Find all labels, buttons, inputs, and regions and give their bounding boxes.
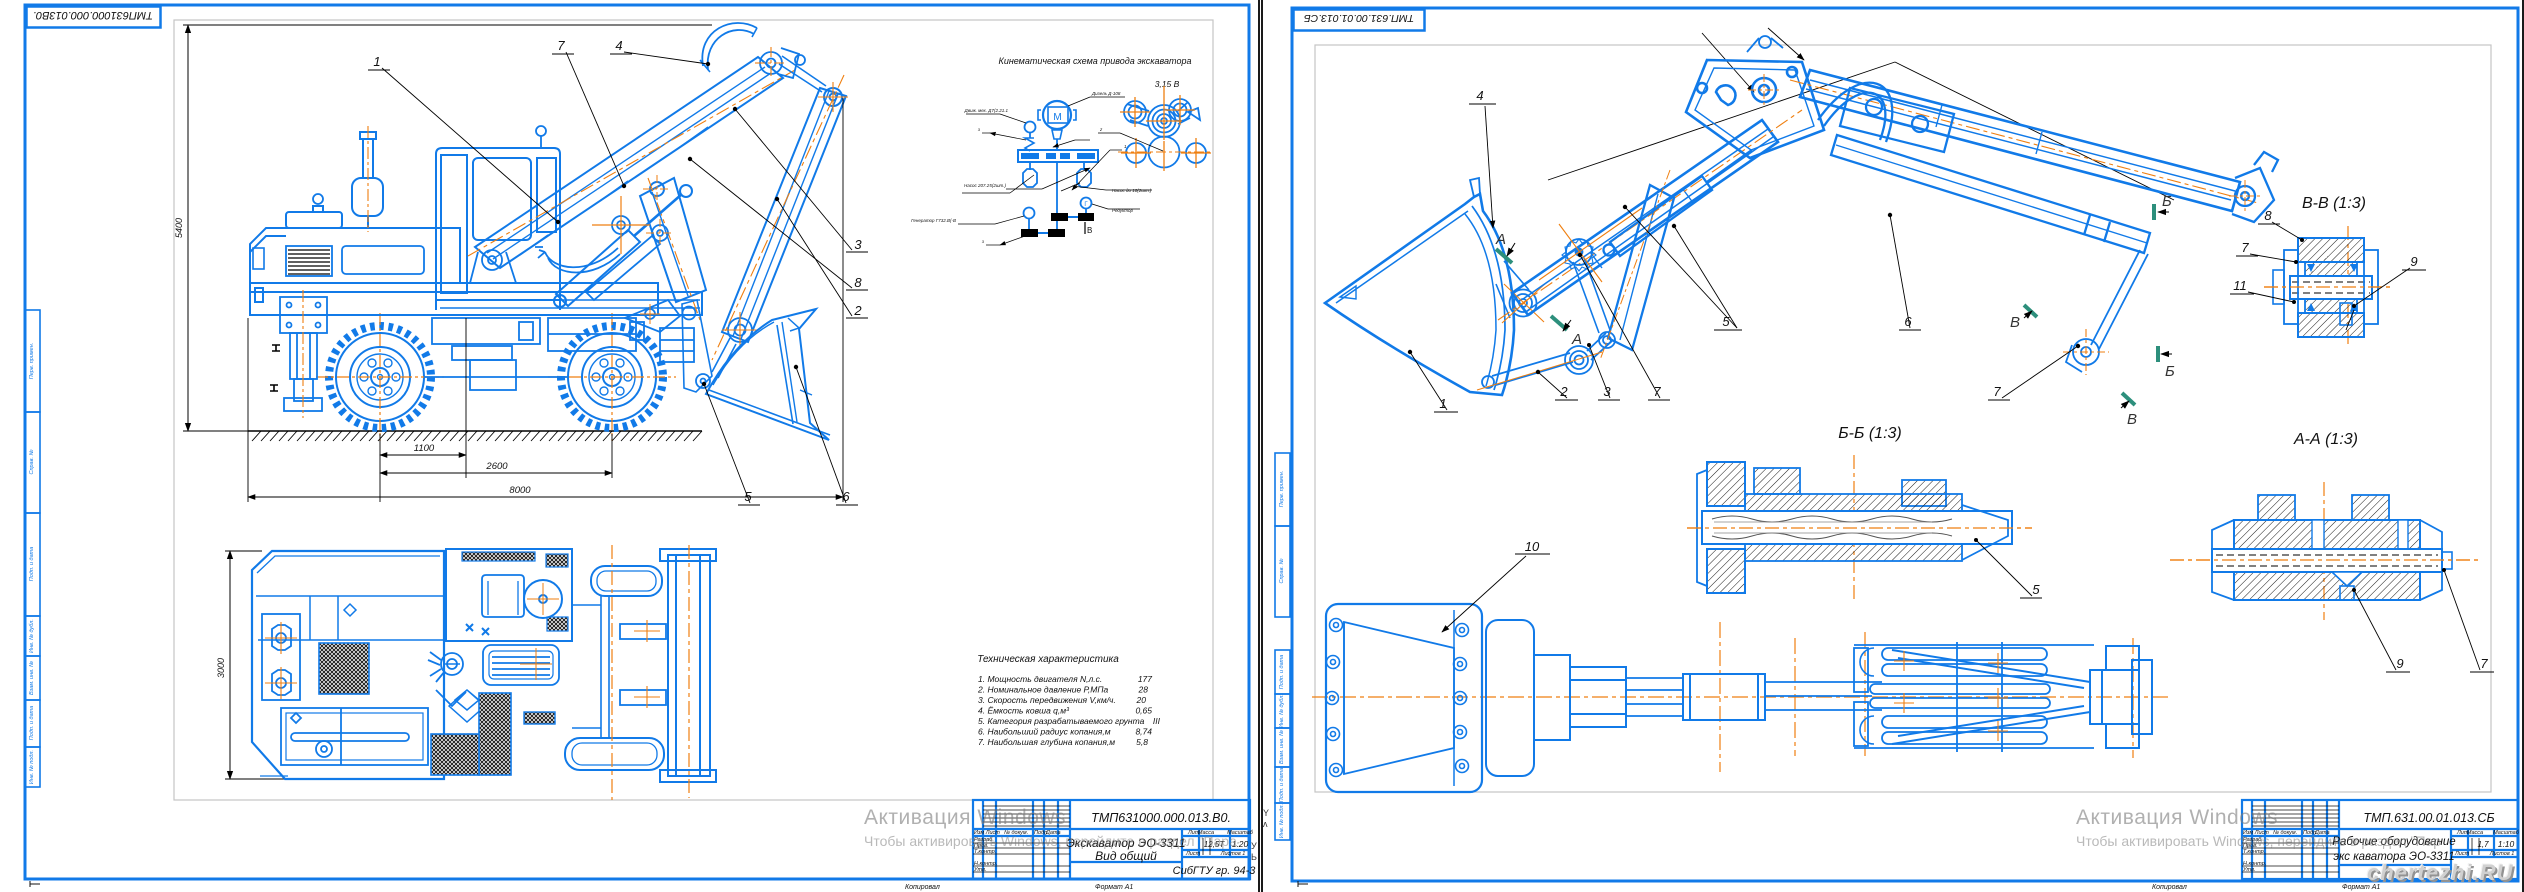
svg-text:Подп. и дата: Подп. и дата (1279, 655, 1285, 689)
svg-text:Перв. примен.: Перв. примен. (29, 343, 35, 380)
svg-text:2600: 2600 (485, 461, 508, 472)
svg-text:В: В (1087, 226, 1092, 235)
svg-text:5,8: 5,8 (1136, 737, 1148, 747)
svg-text:Масштаб: Масштаб (2493, 830, 2520, 836)
svg-text:ТМП.631.00.01.013.СБ: ТМП.631.00.01.013.СБ (1304, 12, 1414, 24)
svg-text:6: 6 (1904, 314, 1912, 329)
svg-text:Листов 1: Листов 1 (1220, 851, 1246, 857)
svg-text:М: М (1053, 112, 1061, 123)
svg-text:Дизель Д-108: Дизель Д-108 (1091, 91, 1121, 96)
svg-text:III: III (1153, 716, 1161, 726)
svg-text:1,7: 1,7 (2477, 840, 2489, 849)
svg-text:8000: 8000 (509, 485, 531, 496)
svg-text:Справ. №: Справ. № (1279, 558, 1285, 583)
svg-text:Кинематическая схема привода: Кинематическая схема привода экскаватора (999, 56, 1192, 66)
svg-text:0,65: 0,65 (1135, 706, 1152, 716)
svg-text:ТМП.631.00.01.013.СБ: ТМП.631.00.01.013.СБ (2363, 811, 2494, 825)
svg-text:Масса: Масса (2467, 830, 2483, 836)
svg-text:5. Категория разрабатываемого: 5. Категория разрабатываемого грунта (978, 716, 1145, 726)
svg-text:1: 1 (373, 54, 380, 69)
svg-text:3: 3 (1603, 384, 1611, 399)
svg-text:Взам. инв. №: Взам. инв. № (1279, 730, 1285, 764)
svg-text:Движ. мех. Д7(2.21.1: Движ. мех. Д7(2.21.1 (964, 108, 1009, 113)
svg-text:9: 9 (2410, 254, 2417, 269)
svg-text:Лист: Лист (2454, 851, 2470, 857)
svg-text:Y: Y (1263, 808, 1269, 818)
svg-text:3: 3 (854, 237, 862, 252)
svg-text:Формат А1: Формат А1 (1095, 884, 1133, 891)
svg-text:2: 2 (853, 303, 862, 318)
svg-text:Б: Б (2162, 193, 2172, 210)
svg-text:А: А (1571, 331, 1582, 348)
svg-text:А-А (1:3): А-А (1:3) (2293, 431, 2358, 448)
svg-text:11: 11 (2233, 278, 2247, 293)
svg-text:ʌ: ʌ (1263, 819, 1268, 829)
svg-text:В-В (1:3): В-В (1:3) (2302, 195, 2366, 212)
svg-text:5: 5 (1722, 314, 1730, 329)
svg-text:8: 8 (2264, 208, 2272, 223)
svg-text:Инв. № дубл.: Инв. № дубл. (1279, 694, 1285, 728)
svg-text:Т.контр.: Т.контр. (2243, 849, 2265, 855)
svg-text:10: 10 (1525, 539, 1540, 554)
svg-text:Инв. № подл.: Инв. № подл. (1279, 804, 1285, 838)
svg-text:Вид общий: Вид общий (1095, 849, 1157, 863)
svg-text:Инв. № дубл.: Инв. № дубл. (29, 619, 35, 653)
svg-text:Подп. и дата: Подп. и дата (29, 706, 35, 740)
svg-text:Насос до 10(2шт.): Насос до 10(2шт.) (1112, 188, 1152, 193)
svg-text:з: з (977, 127, 980, 132)
svg-text:1: 1 (1439, 396, 1446, 411)
svg-text:Взам. инв. №: Взам. инв. № (29, 661, 35, 695)
svg-text:4. Ёмкость ковша q,м³: 4. Ёмкость ковша q,м³ (978, 706, 1070, 716)
svg-text:Т.контр.: Т.контр. (974, 849, 996, 855)
svg-text:2: 2 (1559, 384, 1568, 399)
svg-text:Листов 1: Листов 1 (2489, 851, 2515, 857)
svg-text:6: 6 (842, 489, 850, 504)
svg-text:Б: Б (2165, 363, 2175, 380)
svg-text:1:10: 1:10 (2498, 839, 2515, 849)
svg-text:8: 8 (854, 275, 862, 290)
svg-text:Б-Б (1:3): Б-Б (1:3) (1838, 425, 1902, 442)
svg-text:177: 177 (1138, 674, 1152, 684)
svg-text:Утв.: Утв. (2242, 867, 2256, 873)
svg-text:1100: 1100 (414, 443, 435, 454)
svg-text:В: В (2010, 314, 2020, 331)
svg-text:з: з (981, 239, 984, 244)
svg-text:8,74: 8,74 (1135, 727, 1152, 737)
svg-text:7: 7 (557, 38, 565, 53)
svg-text:2. Номинальное давление Р,МПа: 2. Номинальное давление Р,МПа (977, 685, 1108, 695)
svg-text:В: В (2127, 411, 2137, 428)
svg-text:5400: 5400 (174, 218, 184, 238)
svg-text:Копировал: Копировал (2152, 884, 2187, 891)
svg-text:7: 7 (1653, 384, 1661, 399)
svg-text:6. Наибольший радиус копания,м: 6. Наибольший радиус копания,м (978, 727, 1111, 737)
svg-text:z: z (1099, 127, 1103, 132)
svg-text:Подп. и дата: Подп. и дата (29, 547, 35, 581)
svg-text:А: А (1495, 231, 1506, 248)
svg-text:3. Скорость передвижения V,км: 3. Скорость передвижения V,км/ч. (978, 695, 1116, 705)
svg-text:Редуктор: Редуктор (1112, 208, 1133, 213)
svg-text:Техническая характеристика: Техническая характеристика (977, 654, 1119, 665)
svg-text:Г: Г (1084, 202, 1088, 208)
svg-text:7: 7 (2241, 240, 2249, 255)
svg-text:9: 9 (2396, 656, 2403, 671)
svg-text:Перв. примен.: Перв. примен. (1279, 471, 1285, 508)
svg-text:7: 7 (1993, 384, 2001, 399)
svg-text:4: 4 (1476, 88, 1483, 103)
svg-text:ТМП631000.000.013.В0.: ТМП631000.000.013.В0. (1091, 811, 1231, 825)
svg-text:3000: 3000 (216, 658, 226, 678)
svg-text:Утв.: Утв. (973, 867, 987, 873)
svg-text:Копировал: Копировал (905, 884, 940, 891)
svg-text:3,15 В: 3,15 В (1155, 79, 1180, 89)
svg-text:Справ. №: Справ. № (29, 449, 35, 474)
svg-text:5: 5 (2032, 582, 2040, 597)
svg-text:4: 4 (615, 38, 622, 53)
svg-text:1. Мощность двигателя N,л.с.: 1. Мощность двигателя N,л.с. (978, 674, 1102, 684)
svg-text:20: 20 (1136, 695, 1147, 705)
svg-text:28: 28 (1138, 685, 1149, 695)
svg-text:ТМП631000.000.013В0.: ТМП631000.000.013В0. (33, 9, 153, 21)
svg-text:Ь: Ь (1251, 852, 1257, 862)
svg-text:СибГТУ гр. 94-3: СибГТУ гр. 94-3 (1173, 865, 1257, 877)
svg-text:Насос 207.25(2шт.): Насос 207.25(2шт.) (964, 183, 1006, 188)
svg-text:Генератор Г732.В(-В: Генератор Г732.В(-В (911, 218, 956, 223)
svg-text:Лист: Лист (1185, 851, 1201, 857)
svg-text:Инв. № подл.: Инв. № подл. (29, 750, 35, 784)
svg-text:Подп. и дата: Подп. и дата (1279, 768, 1285, 802)
svg-text:7. Наибольшая глубина копания: 7. Наибольшая глубина копания,м (978, 737, 1115, 747)
svg-text:7: 7 (2480, 656, 2488, 671)
svg-text:5: 5 (744, 489, 752, 504)
